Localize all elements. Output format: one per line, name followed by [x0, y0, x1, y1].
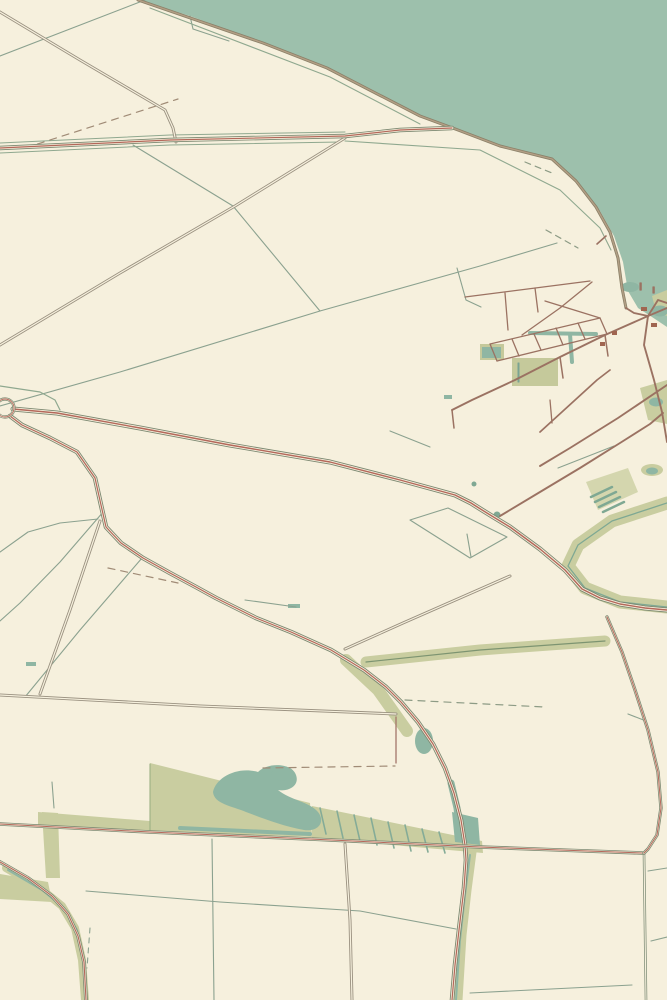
map-viewport	[0, 0, 667, 1000]
pond-dot-field	[444, 395, 452, 399]
pond-dash-2	[26, 662, 36, 666]
building-1	[641, 307, 647, 311]
canal-village-l	[530, 333, 596, 334]
building-2	[651, 323, 657, 327]
building-outline-1	[640, 283, 641, 290]
pond-main-lobe	[272, 766, 294, 780]
canal-village-drop	[570, 334, 572, 362]
tree-dot-2	[472, 482, 477, 487]
pond-dot-e	[646, 468, 658, 475]
building-4	[600, 342, 605, 346]
building-3	[612, 331, 617, 335]
topographic-map	[0, 0, 667, 1000]
building-outline-2	[653, 287, 654, 293]
